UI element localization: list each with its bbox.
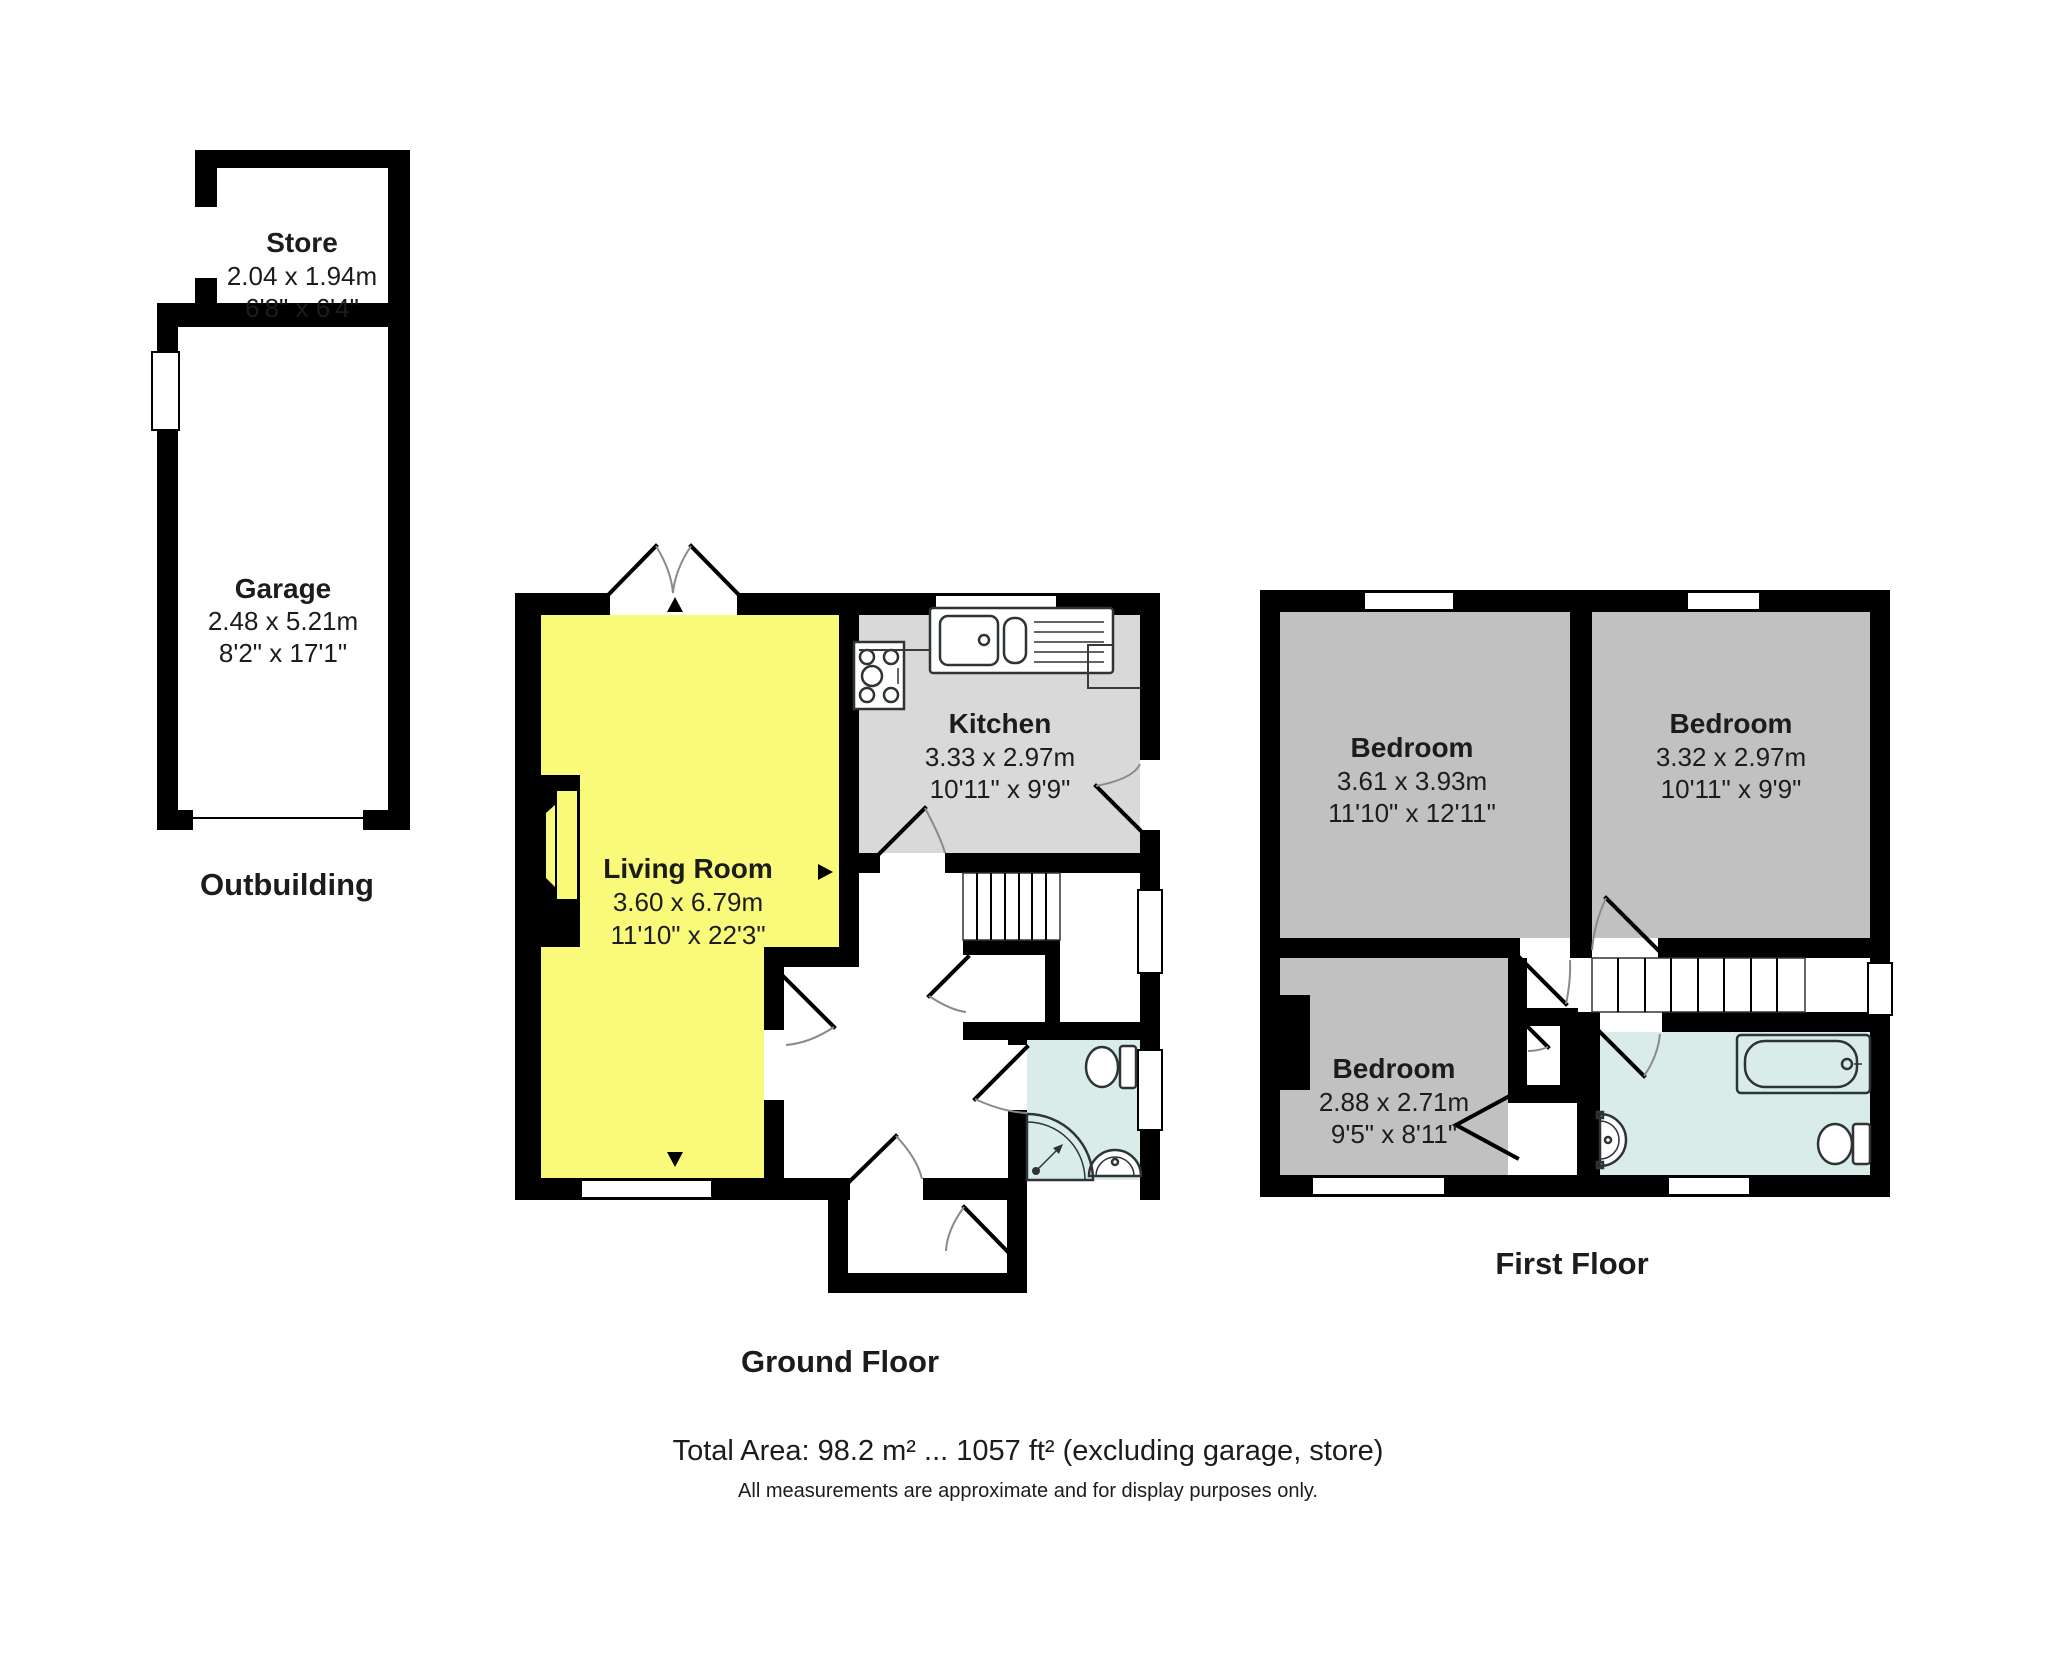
store-metric: 2.04 x 1.94m [227, 261, 377, 291]
living-room-imperial: 11'10" x 22'3" [610, 920, 765, 950]
floorplan-drawing: Store 2.04 x 1.94m 6'8" x 6'4" Garage 2.… [0, 0, 2048, 1657]
landing-window [1868, 963, 1892, 1015]
front-door-opening [850, 1178, 923, 1200]
staircase [963, 873, 1060, 940]
staircase-first-floor [1592, 958, 1805, 1012]
bedroom-small-label: Bedroom [1333, 1053, 1456, 1084]
hob [854, 642, 904, 709]
chimney-breast [1280, 995, 1310, 1090]
garage-label: Garage [235, 573, 332, 604]
wall [157, 810, 193, 830]
bedroom-right-label: Bedroom [1670, 708, 1793, 739]
bedroom-left-door-opening [1520, 938, 1570, 958]
outbuilding-title: Outbuilding [200, 867, 374, 902]
kitchen-door-opening [1140, 760, 1160, 830]
hall-window [1138, 890, 1162, 973]
fireplace-hearth [556, 790, 578, 900]
toilet [1086, 1046, 1136, 1088]
ground-floor-plan: Living Room 3.60 x 6.79m 11'10" x 22'3" … [515, 546, 1162, 1379]
wall [1260, 590, 1890, 612]
french-doors [610, 546, 737, 593]
kitchen-hall-opening [880, 853, 945, 873]
living-room-window [581, 1180, 712, 1198]
bedroom-left-door [1520, 958, 1570, 1004]
wall [963, 1022, 1160, 1040]
living-room-door [784, 977, 834, 1045]
floorplan-page: Store 2.04 x 1.94m 6'8" x 6'4" Garage 2.… [0, 0, 2048, 1657]
sink-unit [930, 608, 1113, 673]
wall [1570, 612, 1592, 958]
fireplace-side [546, 804, 556, 888]
wall [1280, 938, 1520, 958]
total-area-text: Total Area: 98.2 m² ... 1057 ft² (exclud… [673, 1435, 1384, 1467]
porch-door [946, 1207, 1007, 1251]
first-floor-title: First Floor [1495, 1246, 1648, 1281]
bedroom-right-metric: 3.32 x 2.97m [1656, 742, 1806, 772]
wall [515, 593, 541, 1200]
store-imperial: 6'8" x 6'4" [245, 293, 359, 323]
garage-window [152, 352, 179, 430]
wall [1045, 940, 1060, 1022]
bedroom-left-window [1364, 592, 1454, 610]
kitchen-imperial: 10'11" x 9'9" [930, 774, 1071, 804]
living-room-label: Living Room [603, 853, 773, 884]
bedroom-small-metric: 2.88 x 2.71m [1319, 1087, 1469, 1117]
bathroom-window [1668, 1177, 1750, 1195]
wall [195, 150, 217, 207]
garage-imperial: 8'2" x 17'1" [219, 638, 347, 668]
kitchen-metric: 3.33 x 2.97m [925, 742, 1075, 772]
bedroom-right-window [1687, 592, 1760, 610]
wall [1260, 590, 1280, 1197]
living-room-metric: 3.60 x 6.79m [613, 887, 763, 917]
bedroom-small-window [1312, 1177, 1445, 1195]
wc-window [1138, 1050, 1162, 1130]
wall [1508, 1085, 1578, 1103]
outbuilding-plan: Store 2.04 x 1.94m 6'8" x 6'4" Garage 2.… [152, 150, 410, 902]
wall [1870, 590, 1890, 1197]
bathroom-door-opening [1600, 1012, 1662, 1032]
disclaimer-text: All measurements are approximate and for… [738, 1480, 1318, 1502]
front-door [850, 1136, 922, 1181]
hall-door-opening [764, 1030, 784, 1100]
airing-cupboard-door [1527, 1026, 1548, 1051]
bedroom-left-imperial: 11'10" x 12'11" [1328, 798, 1496, 828]
bedroom-small-imperial: 9'5" x 8'11" [1331, 1119, 1457, 1149]
toilet-first-floor [1818, 1124, 1870, 1164]
bedroom-right-imperial: 10'11" x 9'9" [1661, 774, 1802, 804]
wall [1658, 938, 1890, 958]
bedroom-left-metric: 3.61 x 3.93m [1337, 766, 1487, 796]
bedroom-left-label: Bedroom [1351, 732, 1474, 763]
ground-floor-title: Ground Floor [741, 1344, 939, 1379]
kitchen-label: Kitchen [949, 708, 1052, 739]
cupboard-door [929, 957, 968, 1012]
wall [363, 810, 410, 830]
footer: Total Area: 98.2 m² ... 1057 ft² (exclud… [673, 1435, 1384, 1502]
wall [1007, 1178, 1027, 1293]
wall [1577, 1012, 1600, 1177]
store-label: Store [266, 227, 338, 258]
wall [195, 150, 410, 168]
wall [828, 1273, 1027, 1293]
wall [388, 150, 410, 830]
first-floor-plan: Bedroom 3.61 x 3.93m 11'10" x 12'11" Bed… [1260, 590, 1892, 1281]
garage-metric: 2.48 x 5.21m [208, 606, 358, 636]
